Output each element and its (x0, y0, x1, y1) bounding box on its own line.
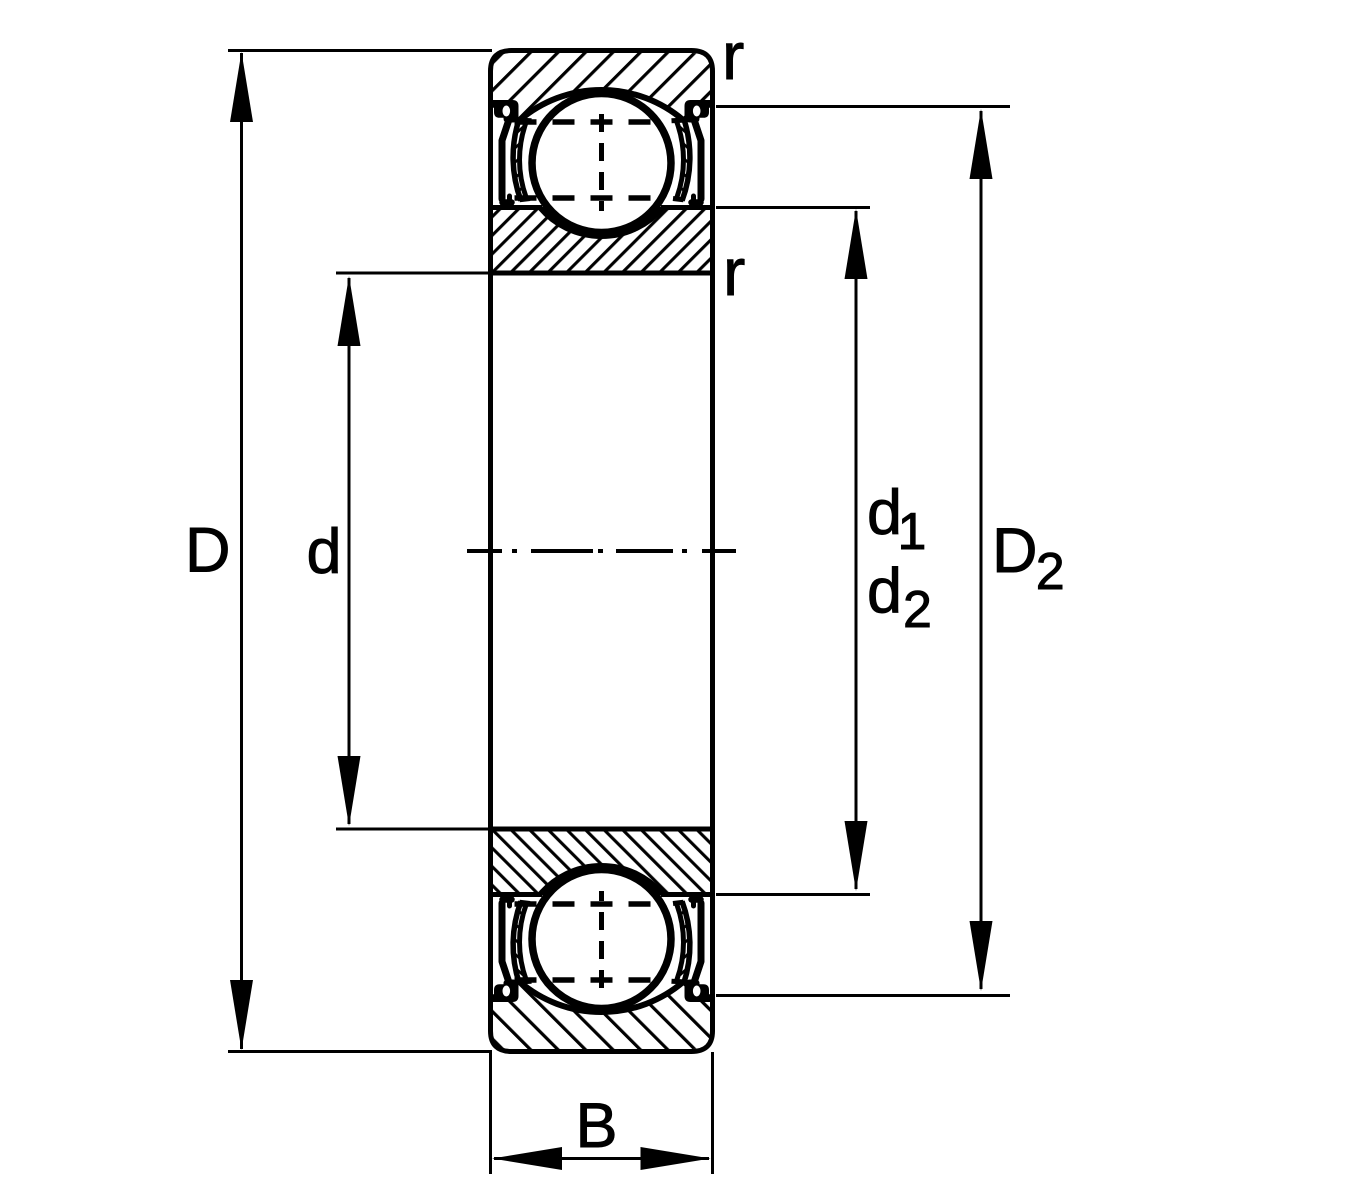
svg-text:d: d (867, 556, 902, 626)
svg-text:r: r (722, 19, 744, 94)
svg-text:D: D (992, 516, 1038, 586)
svg-text:B: B (576, 1091, 618, 1161)
svg-text:r: r (723, 235, 745, 310)
svg-text:1: 1 (898, 503, 927, 561)
svg-text:d: d (307, 517, 342, 587)
svg-text:2: 2 (903, 581, 932, 639)
svg-text:D: D (185, 516, 231, 586)
svg-text:2: 2 (1036, 543, 1065, 601)
